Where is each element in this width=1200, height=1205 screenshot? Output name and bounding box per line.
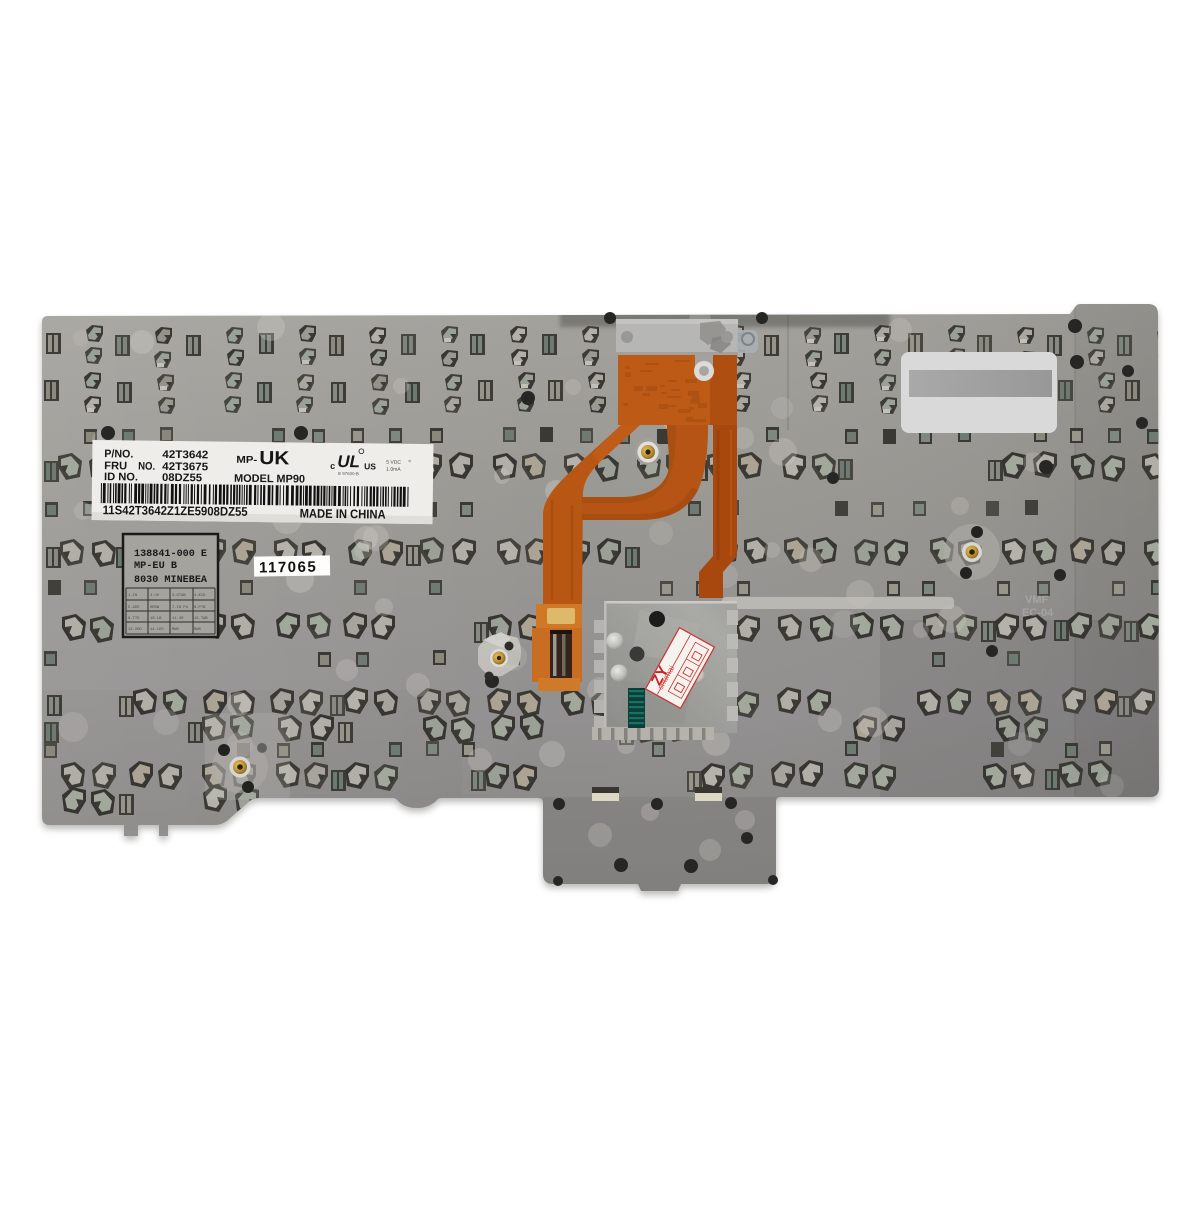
svg-text:10.LB: 10.LB <box>150 617 162 621</box>
svg-text:MADE IN CHINA: MADE IN CHINA <box>300 507 386 522</box>
svg-text:UK: UK <box>259 448 290 469</box>
svg-text:9.TTD: 9.TTD <box>128 617 140 621</box>
svg-text:11S42T3642Z1ZE5908DZ55: 11S42T3642Z1ZE5908DZ55 <box>103 503 248 519</box>
svg-text:E 97600-B: E 97600-B <box>338 471 359 476</box>
svg-text:VMF: VMF <box>1025 594 1049 606</box>
svg-text:UL: UL <box>337 452 360 471</box>
svg-text:11.4R: 11.4R <box>172 617 184 621</box>
svg-text:42T3642: 42T3642 <box>162 449 208 462</box>
svg-text:EC-04: EC-04 <box>1022 607 1054 619</box>
svg-text:NO.: NO. <box>138 461 155 473</box>
svg-text:12.TWB: 12.TWB <box>194 617 208 621</box>
svg-text:117065: 117065 <box>259 559 318 577</box>
svg-text:2.UV: 2.UV <box>150 594 160 598</box>
svg-text:MP-: MP- <box>236 455 257 466</box>
svg-text:5 VDC: 5 VDC <box>386 460 401 466</box>
svg-text:MP-EU B: MP-EU B <box>134 560 178 572</box>
svg-text:138841-000 E: 138841-000 E <box>134 548 207 560</box>
svg-text:08DZ55: 08DZ55 <box>162 472 202 484</box>
svg-text:=: = <box>408 459 411 465</box>
svg-text:RW0: RW0 <box>172 628 180 632</box>
svg-text:US: US <box>364 461 376 471</box>
svg-text:8030 MINEBEA: 8030 MINEBEA <box>134 574 208 586</box>
svg-text:1.IN: 1.IN <box>128 594 137 598</box>
svg-text:13.VDD: 13.VDD <box>128 628 142 632</box>
svg-text:RW0: RW0 <box>194 628 202 632</box>
svg-text:14.LED: 14.LED <box>150 628 164 632</box>
svg-text:7.IN Pd: 7.IN Pd <box>172 605 188 610</box>
svg-text:P/NO.: P/NO. <box>104 448 133 460</box>
svg-text:c: c <box>330 461 335 471</box>
svg-text:MODEL MP90: MODEL MP90 <box>234 473 305 486</box>
svg-text:8.PTB: 8.PTB <box>194 606 206 610</box>
svg-text:KRSW: KRSW <box>150 606 160 610</box>
svg-text:4.KCD: 4.KCD <box>194 594 206 598</box>
svg-text:ID NO.: ID NO. <box>104 471 138 483</box>
svg-text:3.GTAB: 3.GTAB <box>172 594 186 598</box>
svg-text:5.GDD: 5.GDD <box>128 606 140 610</box>
svg-text:1.0mA: 1.0mA <box>386 467 401 473</box>
